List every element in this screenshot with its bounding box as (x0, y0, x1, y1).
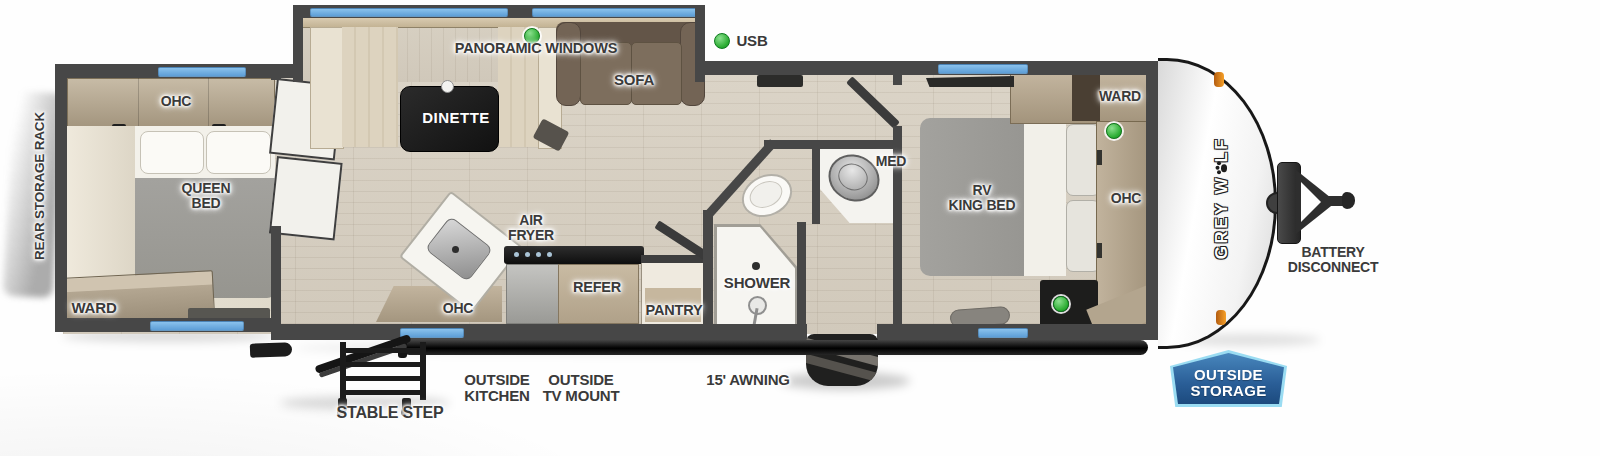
window (978, 328, 1028, 338)
rear-storage-rack-label: REAR STORAGE RACK (33, 112, 47, 260)
step-rung (346, 348, 420, 353)
shower-label: SHOWER (724, 275, 790, 291)
sofa-label: SOFA (614, 72, 654, 88)
awning-label: 15' AWNING (706, 372, 790, 388)
outside-tv-mount-label: OUTSIDE TV MOUNT (543, 372, 620, 404)
pantry-top-wall (641, 255, 705, 263)
shower-wall (797, 222, 806, 332)
outside-kitchen-label: OUTSIDE KITCHEN (464, 372, 529, 404)
brand-text-2: LF (1212, 137, 1231, 163)
slideout-left-wall (293, 5, 303, 82)
window (158, 67, 246, 77)
dinette-label: DINETTE (422, 109, 490, 126)
pillow (1066, 124, 1100, 196)
panoramic-windows-label: PANORAMIC WINDOWS (455, 41, 617, 56)
step-rung (346, 390, 420, 395)
brand-logo: GREY WLF (1212, 137, 1232, 259)
step-rung (346, 362, 420, 367)
sofa-armrest (556, 22, 581, 106)
main-top-wall (695, 61, 1160, 75)
front-ward-label: WARD (1099, 89, 1141, 104)
brand-text-1: GREY W (1212, 176, 1231, 260)
pillow (206, 131, 271, 174)
range-oven (506, 264, 560, 324)
king-bed-sheet (1024, 118, 1066, 276)
paw-icon (1216, 163, 1228, 176)
cooktop-burner (514, 252, 519, 257)
feature-dot-nightstand (1053, 296, 1069, 312)
rear-exterior-wall (55, 64, 67, 332)
stable-step-label: STABLE STEP (337, 405, 444, 422)
stable-step-frame (340, 342, 426, 400)
rear-ohc-divider (138, 78, 139, 126)
rear-partition-wall (271, 226, 281, 340)
dinette-bench-seat (342, 27, 398, 147)
pillow (140, 131, 204, 174)
rear-ohc-label: OHC (161, 94, 192, 109)
cooktop-burner (536, 252, 541, 257)
feature-dot-ward (1106, 123, 1122, 139)
rv-king-bed-label: RV KING BED (949, 183, 1016, 213)
front-ward-dark-section (1072, 74, 1100, 121)
med-label: MED (876, 154, 907, 169)
refer-label: REFER (573, 280, 621, 295)
window (150, 321, 244, 331)
awning-bar (402, 340, 1148, 355)
kitchen-faucet (452, 246, 459, 253)
front-ohc-label: OHC (1111, 191, 1142, 206)
rv-floorplan: GREY WLF OUTSIDE STORAGE REAR STORAGE RA… (0, 0, 1600, 456)
clearance-marker (1214, 72, 1224, 87)
queen-bed-label: QUEEN BED (182, 181, 231, 211)
cooktop-burner (547, 252, 552, 257)
battery-disconnect-label: BATTERY DISCONNECT (1288, 245, 1379, 275)
med-divider-wall (812, 140, 820, 224)
bathroom-top-wall (764, 140, 902, 149)
pillow (1066, 200, 1100, 272)
air-fryer-label: AIR FRYER (508, 213, 554, 243)
rear-ohc-divider (208, 78, 209, 126)
bedroom-partition-wall (893, 75, 902, 85)
outside-storage-badge: OUTSIDE STORAGE (1170, 350, 1287, 407)
slideout-window (532, 8, 698, 17)
bathroom-left-wall (703, 210, 713, 332)
nightstand (1040, 280, 1098, 330)
dinette-table-leg (441, 80, 454, 93)
shower-drain (752, 262, 760, 270)
cooktop-burner (525, 252, 530, 257)
dinette-bench-back (310, 27, 344, 149)
rear-bumper (250, 342, 292, 357)
cabinet-handle (1097, 150, 1102, 165)
rear-ward-label: WARD (71, 300, 116, 316)
rear-dresser (67, 126, 136, 280)
pantry-label: PANTRY (646, 303, 703, 318)
clearance-marker (1216, 310, 1226, 325)
window-shade (757, 75, 803, 87)
outside-storage-label: OUTSIDE STORAGE (1170, 350, 1287, 407)
window (938, 64, 1028, 74)
cabinet-handle (1097, 243, 1102, 258)
usb-label: USB (736, 33, 767, 49)
main-bottom-wall (277, 324, 807, 340)
hitch-coupler (1342, 192, 1355, 209)
feature-dot-usb (714, 33, 730, 49)
slideout-window (310, 8, 508, 17)
rear-partition-wall (271, 64, 281, 80)
step-rung (346, 376, 420, 381)
kitchen-ohc-label: OHC (443, 301, 474, 316)
